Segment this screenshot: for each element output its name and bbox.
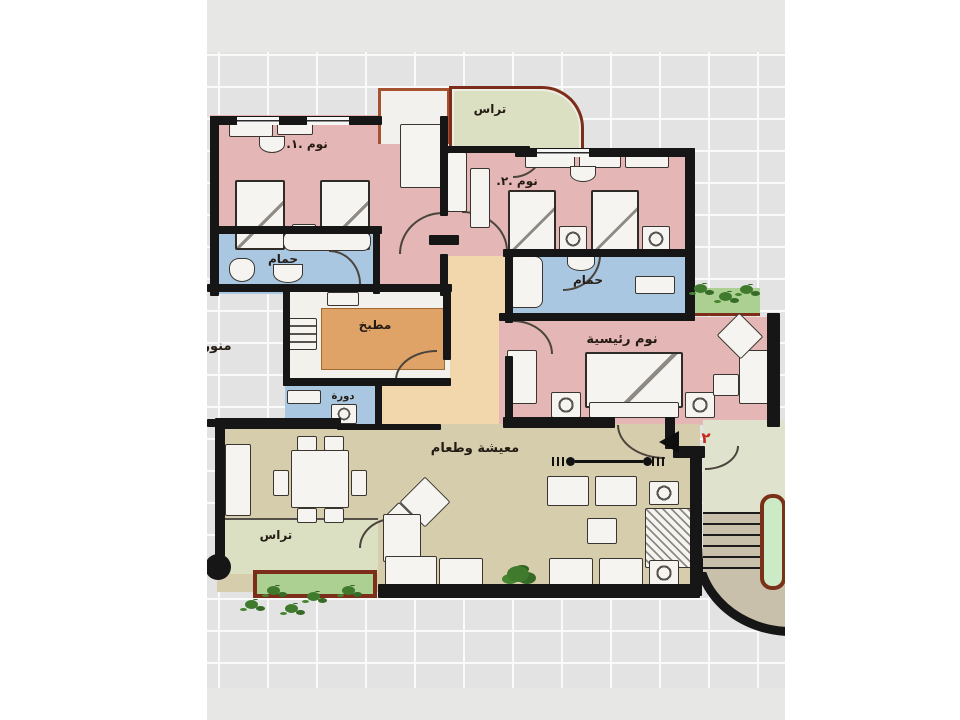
wardrobe-bedroom2-a: [447, 152, 467, 212]
square-table-living: [587, 518, 617, 544]
label-bedroom1: نوم .١.: [265, 138, 349, 151]
wall-bathroom1-right: [373, 228, 380, 294]
window-bedroom1-b: [307, 117, 349, 125]
plant-planter-right-c: [740, 285, 753, 294]
plant-planter-bottom-c: [342, 586, 355, 595]
label-bedroom2: نوم .٢.: [473, 175, 561, 188]
side-table-living-top: [649, 481, 679, 505]
tv-unit-living: [645, 508, 693, 568]
plant-planter-bottom-a: [267, 586, 280, 595]
wall-bedroom1-right-a: [440, 116, 448, 216]
label-bathroom1: حمام: [243, 253, 323, 266]
window-bedroom2: [537, 149, 589, 157]
wall-kitchen-right: [443, 290, 451, 360]
l-sofa-vertical: [383, 514, 421, 562]
wall-living-top-mid: [337, 424, 441, 430]
toilet-bathroom2: [567, 255, 595, 271]
wall-hall-right-a: [505, 255, 513, 323]
wall-wc-right: [375, 383, 382, 428]
side-table-living-bottom: [649, 560, 679, 586]
wall-kitchen-bottom: [283, 378, 451, 386]
bed-bedroom1-a: [235, 180, 285, 250]
hall-lower: [375, 385, 441, 428]
unit-number: ٢: [696, 430, 716, 447]
wall-bedroom1-top: [210, 116, 382, 125]
stool-bedroom2: [570, 166, 596, 182]
wall-master-top: [499, 313, 695, 321]
sink-bathroom1: [273, 264, 303, 283]
dining-chair-bottom-b: [324, 508, 344, 523]
label-bathroom2: حمام: [548, 274, 628, 287]
wall-living-right: [690, 450, 702, 596]
armchair-living-b: [595, 476, 637, 506]
wall-master-bottom: [503, 417, 615, 428]
dining-table: [291, 450, 349, 508]
wall-bathroom1-top: [210, 226, 382, 234]
nightstand-master-a: [551, 392, 581, 418]
stool-master: [713, 374, 739, 396]
dining-chair-top-a: [297, 436, 317, 451]
label-kitchen: مطبخ: [335, 319, 415, 332]
plant-living: [507, 566, 529, 582]
stair-handrail: [760, 494, 785, 590]
wall-left-upper: [210, 116, 219, 296]
wall-kitchen-left: [283, 286, 290, 386]
wall-bedroom2-bottom: [503, 249, 695, 257]
wardrobe-bedroom1: [400, 124, 442, 188]
dining-chair-top-b: [324, 436, 344, 451]
console-living: [225, 444, 251, 516]
entrance-arrow-icon: [659, 431, 679, 453]
grid-bottom-mask: [207, 688, 785, 720]
dining-chair-left: [273, 470, 289, 496]
wall-living-top-left: [215, 418, 341, 429]
wall-vestibule-stub: [429, 235, 459, 245]
sink-bathroom2: [635, 276, 675, 294]
label-light-well: منور: [207, 340, 253, 354]
bed-master-pillow-bar: [589, 402, 679, 418]
wall-living-bottom: [378, 584, 700, 598]
label-terrace-bottom: تراس: [237, 529, 315, 542]
terrace-bottom-room: [222, 518, 378, 574]
bed-master: [585, 352, 683, 408]
counter-sink-kitchen: [327, 292, 359, 306]
label-living-dining: معيشة وطعام: [403, 442, 547, 456]
floor-plan-canvas: ٢ تراس نوم .١. نوم .٢. حمام حمام مطبخ من…: [207, 0, 785, 720]
bed-bedroom2-b: [591, 190, 639, 252]
label-terrace-top: تراس: [457, 103, 523, 116]
plant-planter-right-b: [719, 292, 732, 301]
wall-right-upper: [685, 148, 695, 321]
dining-chair-bottom-a: [297, 508, 317, 523]
dining-chair-right: [351, 470, 367, 496]
plant-planter-right-a: [694, 284, 707, 293]
bathtub-bathroom1: [283, 231, 371, 251]
wall-master-left: [505, 356, 513, 428]
window-living-hatch: [552, 454, 666, 468]
label-master-bedroom: نوم رئيسية: [559, 333, 685, 347]
plant-planter-bottom-d: [245, 600, 258, 609]
stove-kitchen: [287, 318, 317, 350]
plant-planter-bottom-e: [285, 604, 298, 613]
wall-master-right: [767, 313, 780, 427]
wall-kitchen-top: [207, 284, 452, 292]
nightstand-master-b: [685, 392, 715, 418]
armchair-living-a: [547, 476, 589, 506]
window-bedroom1-a: [237, 117, 279, 125]
label-wc: دورة: [313, 391, 373, 402]
floor-plan-page: ٢ تراس نوم .١. نوم .٢. حمام حمام مطبخ من…: [0, 0, 960, 720]
bed-bedroom2-a: [508, 190, 556, 252]
plant-planter-bottom-b: [307, 592, 320, 601]
terrace-top-room: [449, 86, 584, 152]
grid-top-mask: [207, 0, 785, 52]
